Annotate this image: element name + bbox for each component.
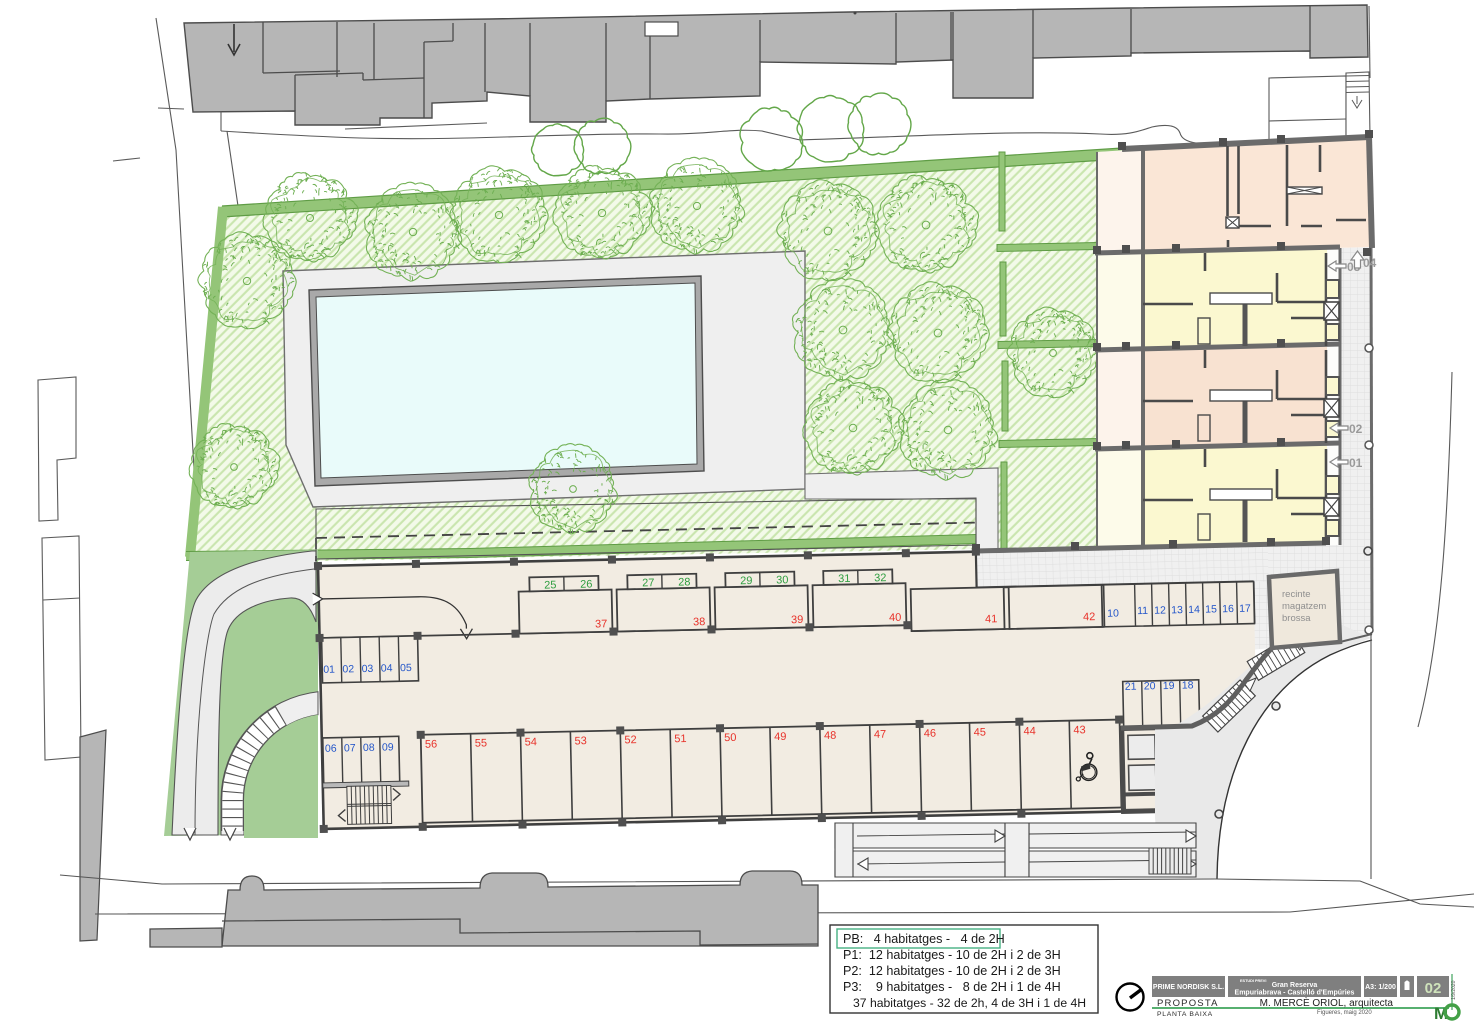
svg-text:1/9/2020: 1/9/2020 [1451,980,1457,1000]
svg-text:Empuriabrava - Castelló d'Empú: Empuriabrava - Castelló d'Empúries [1235,990,1355,997]
svg-text:P3: 9 habitatges - 8 de 2: P3: 9 habitatges - 8 de 2H i 1 de 4H [843,980,1061,994]
svg-text:Figueres, maig 2020: Figueres, maig 2020 [1317,1010,1372,1016]
svg-text:02: 02 [1425,980,1442,997]
svg-text:50: 50 [724,732,737,744]
svg-text:04: 04 [1363,256,1377,270]
svg-text:02: 02 [1349,422,1363,436]
svg-text:49: 49 [774,731,787,743]
svg-text:52: 52 [624,734,637,746]
svg-text:03: 03 [362,663,374,675]
svg-text:29: 29 [740,575,753,587]
svg-text:14: 14 [1188,604,1200,616]
svg-text:11: 11 [1137,605,1148,617]
svg-text:PLANTA BAIXA: PLANTA BAIXA [1157,1011,1213,1018]
svg-text:08: 08 [363,742,375,754]
svg-text:39: 39 [791,614,804,626]
svg-text:P1: 12 habitatges - 10 de 2H: P1: 12 habitatges - 10 de 2H i 2 de 3H [843,948,1061,962]
svg-text:44: 44 [1023,725,1036,737]
svg-text:16: 16 [1222,603,1234,615]
svg-text:28: 28 [678,576,691,588]
svg-text:37: 37 [595,618,608,630]
svg-text:04: 04 [381,662,393,674]
svg-text:38: 38 [693,616,706,628]
svg-text:46: 46 [924,728,937,740]
svg-text:P2: 12 habitatges - 10 de 2H: P2: 12 habitatges - 10 de 2H i 2 de 3H [843,964,1061,978]
svg-text:43: 43 [1073,724,1086,736]
svg-text:12: 12 [1154,605,1166,617]
svg-text:40: 40 [889,612,902,624]
svg-text:48: 48 [824,730,837,742]
svg-text:Gran Reserva: Gran Reserva [1272,982,1318,989]
svg-text:21: 21 [1125,681,1137,693]
svg-text:brossa: brossa [1282,613,1311,624]
svg-text:27: 27 [642,577,655,589]
svg-text:01: 01 [1349,456,1363,470]
svg-text:17: 17 [1239,603,1251,615]
svg-text:26: 26 [580,579,593,591]
svg-text:53: 53 [574,735,587,747]
svg-text:13: 13 [1171,604,1183,616]
svg-text:PRIME NORDISK S.L.: PRIME NORDISK S.L. [1153,984,1224,991]
svg-text:25: 25 [544,579,557,591]
svg-text:02: 02 [342,663,354,675]
svg-text:51: 51 [674,733,687,745]
svg-text:20: 20 [1144,680,1156,692]
svg-text:09: 09 [382,741,394,753]
svg-text:31: 31 [838,573,851,585]
svg-text:PB: 4 habitatges - 4 de 2H: PB: 4 habitatges - 4 de 2H [843,932,1005,946]
svg-text:42: 42 [1083,611,1096,623]
svg-text:30: 30 [776,574,789,586]
svg-text:41: 41 [985,613,998,625]
svg-text:37 habitatges - 32 de 2h, 4 de: 37 habitatges - 32 de 2h, 4 de 3H i 1 de… [853,996,1086,1010]
svg-text:15: 15 [1205,603,1217,615]
svg-text:M. MERCÈ ORIOL, arquitecta: M. MERCÈ ORIOL, arquitecta [1260,996,1394,1009]
svg-text:07: 07 [344,742,356,754]
svg-text:01: 01 [323,664,335,676]
svg-text:54: 54 [525,736,538,748]
svg-text:recinte: recinte [1282,589,1311,600]
svg-text:A3: 1/200: A3: 1/200 [1365,984,1396,991]
svg-text:06: 06 [325,743,337,755]
svg-text:45: 45 [974,726,987,738]
svg-text:10: 10 [1107,608,1119,620]
svg-text:05: 05 [400,662,412,674]
svg-text:32: 32 [874,572,887,584]
svg-text:55: 55 [475,737,488,749]
svg-text:56: 56 [425,738,438,750]
svg-text:18: 18 [1182,679,1194,691]
svg-text:ESTUDI PREVI: ESTUDI PREVI [1240,979,1266,983]
svg-text:47: 47 [874,729,887,741]
svg-text:magatzem: magatzem [1282,601,1326,612]
svg-text:19: 19 [1163,680,1175,692]
